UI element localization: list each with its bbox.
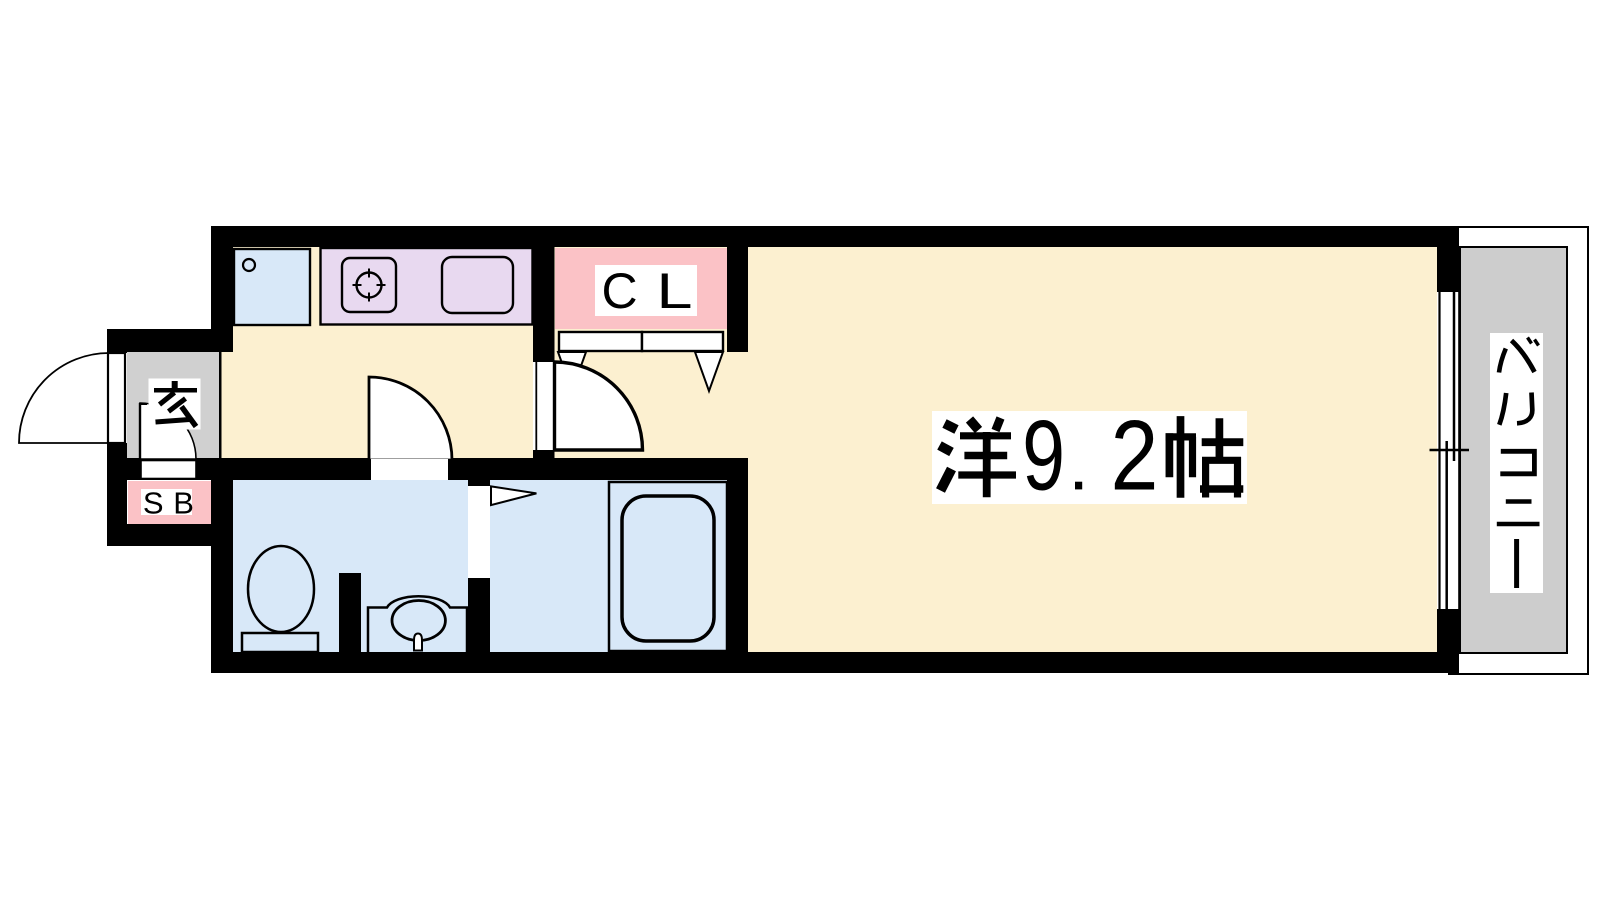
svg-text:B: B [173, 486, 194, 521]
svg-text:9: 9 [1022, 400, 1065, 510]
svg-text:L: L [656, 264, 692, 319]
svg-text:S: S [143, 486, 164, 521]
svg-text:2: 2 [1111, 400, 1159, 511]
svg-text:C: C [601, 263, 637, 319]
